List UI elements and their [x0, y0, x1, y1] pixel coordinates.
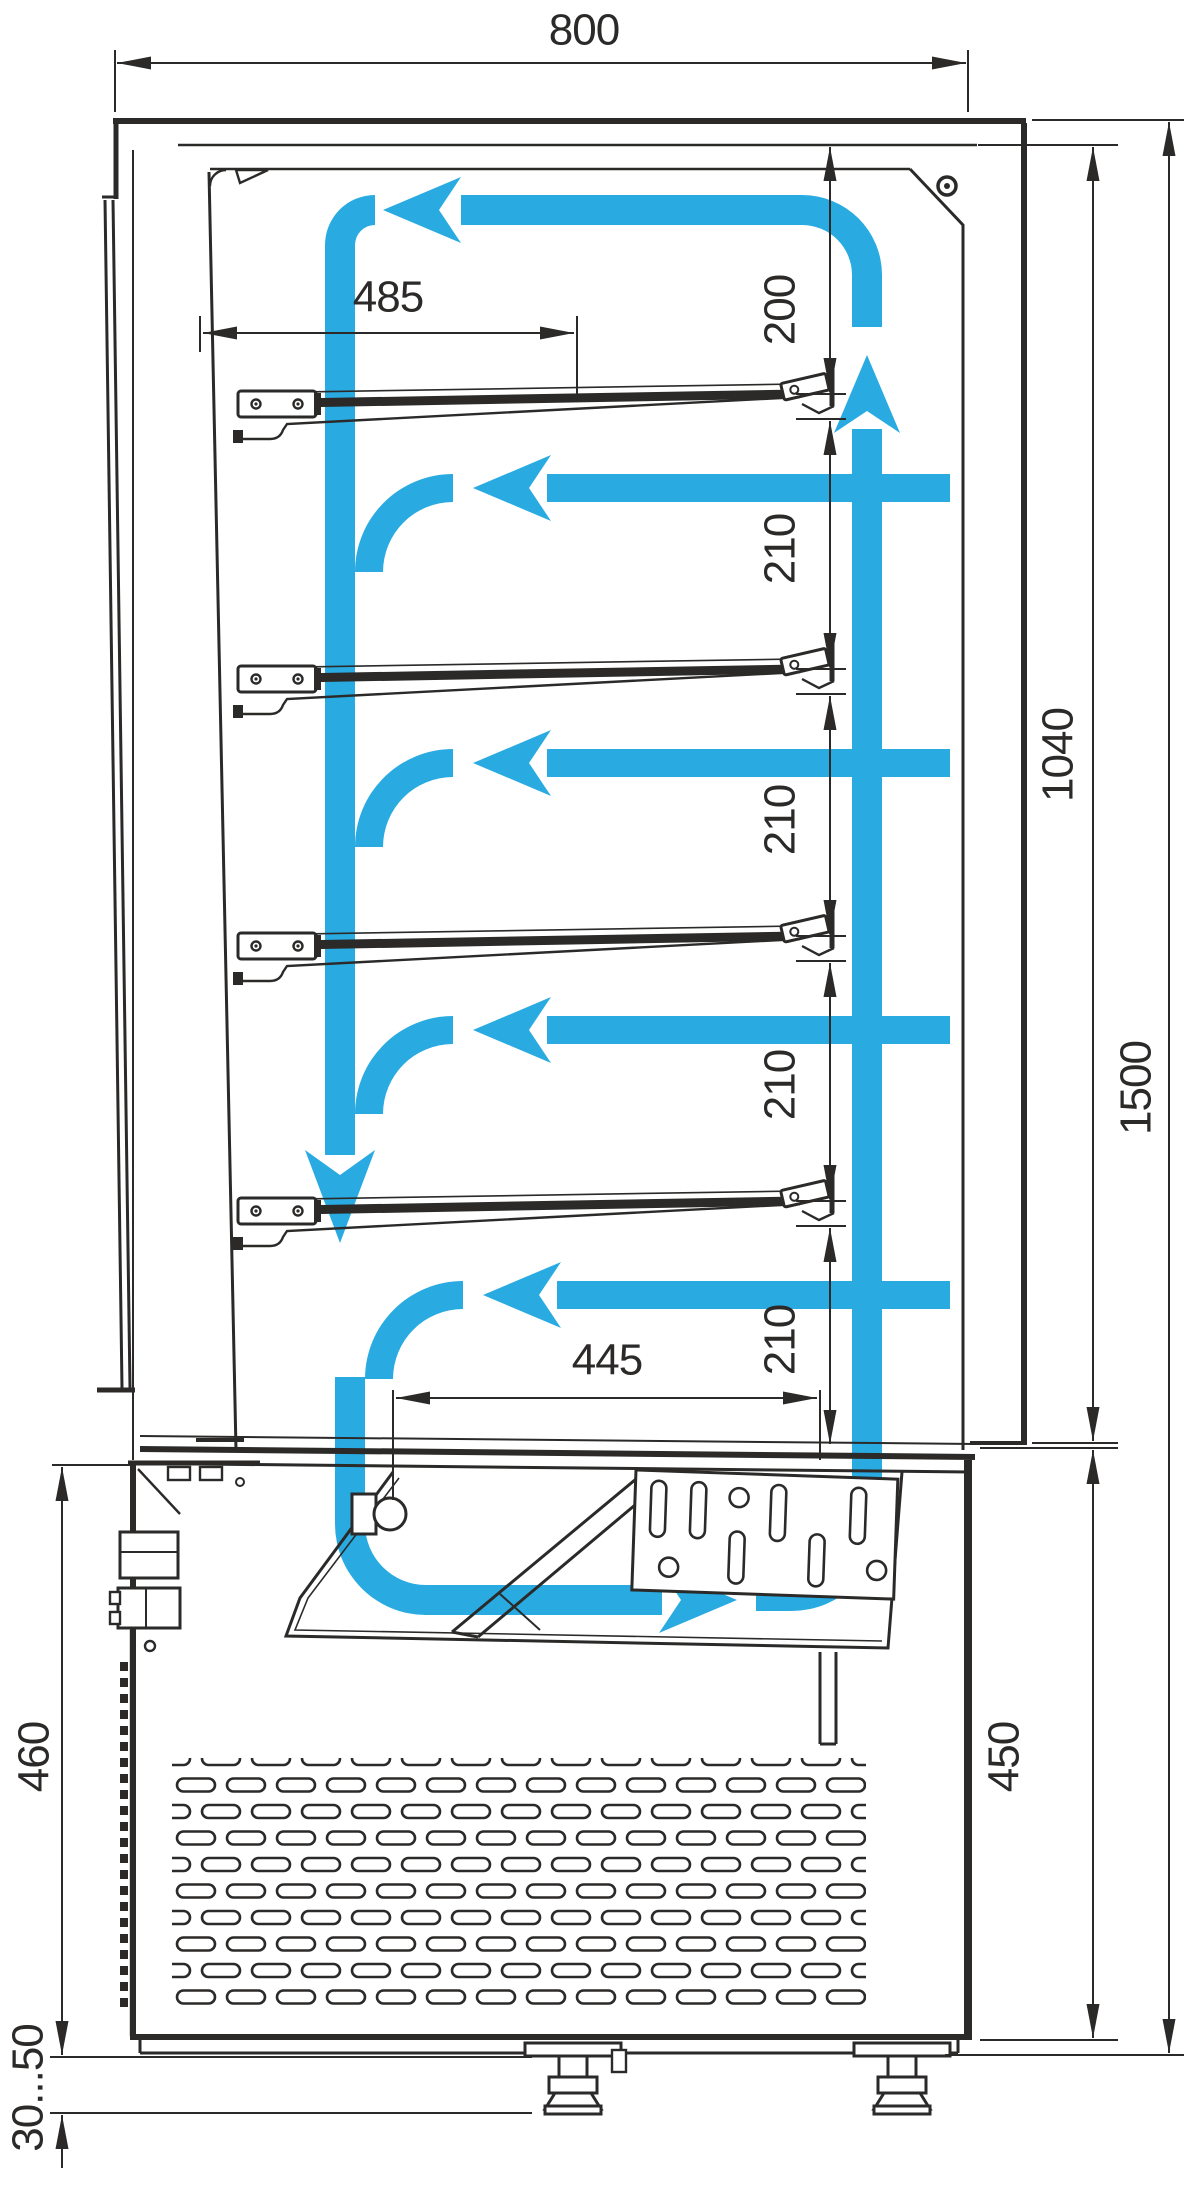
- dim-label-gap-3: 210: [756, 1050, 805, 1120]
- dim-label-overall-height: 1500: [1112, 1041, 1161, 1135]
- dim-label-well-opening: 445: [572, 1336, 642, 1385]
- back-panel: [209, 172, 236, 1450]
- drawing-sheet: 800 485 200 210 210 210 210: [0, 0, 1189, 2186]
- dim-foot-adjustment: 30...50: [4, 2024, 533, 2168]
- shelf-1-front-clamp: [781, 373, 830, 400]
- dim-label-overall-width: 800: [549, 6, 619, 55]
- airflow-left-arrow-4-icon: [483, 1262, 561, 1328]
- airflow-left-arrow-1-icon: [473, 455, 551, 521]
- dim-shelf-gaps-chain: 200 210 210 210 210: [756, 147, 847, 1444]
- dim-display-height: 1040: [978, 145, 1118, 1443]
- screw-icon: [145, 1641, 155, 1651]
- shelf-4-front-clamp: [781, 1180, 830, 1207]
- shelf-1: [233, 369, 834, 443]
- fan-mount: [352, 1494, 376, 1534]
- adjustable-foot-right: [854, 2043, 950, 2114]
- airflow-left-arrow-top-icon: [383, 177, 461, 243]
- dim-label-top-gap: 200: [756, 275, 805, 345]
- corner-arc: [210, 170, 226, 186]
- dim-overall-width: 800: [115, 6, 968, 113]
- dim-label-shelf-depth: 485: [353, 273, 423, 322]
- electrical-box: [110, 1532, 180, 1628]
- shelf-2-bracket: [238, 666, 316, 692]
- airflow-bottom-left-curl: [335, 1524, 426, 1615]
- shelf-3-bracket: [238, 933, 316, 959]
- dim-label-display-height: 1040: [1034, 708, 1083, 802]
- adjustable-foot-left: [525, 2043, 626, 2114]
- screw-center: [944, 183, 950, 189]
- airflow-riser-band: [852, 429, 882, 1520]
- dim-shelf-depth: 485: [200, 273, 577, 397]
- refrigerated-display-case-section-drawing: 800 485 200 210 210 210 210: [0, 0, 1189, 2186]
- dim-label-foot-adjustment: 30...50: [4, 2024, 53, 2152]
- airflow-left-arrow-3-icon: [473, 997, 551, 1063]
- airflow-ceiling-band: [461, 195, 763, 225]
- airflow-well-band: [424, 1585, 662, 1615]
- shelf-2: [233, 644, 834, 718]
- shelf-3-front-clamp: [781, 915, 830, 942]
- front-glass: [105, 200, 130, 1388]
- shelf-2-front-clamp: [781, 648, 830, 675]
- corner-flap: [236, 170, 268, 183]
- dim-label-base-height-front: 450: [980, 1722, 1029, 1792]
- airflow-top-left-curl: [325, 195, 375, 284]
- dim-label-gap-2: 210: [756, 785, 805, 855]
- airflow-curtain-band-upper: [325, 282, 355, 1155]
- ventilation-grille: [172, 1758, 866, 2014]
- shelf-3: [233, 911, 834, 985]
- fan-motor: [374, 1498, 406, 1530]
- perforated-tray: [632, 1470, 898, 1599]
- shelf-4-bracket: [238, 1198, 316, 1224]
- duct-inner-wall: [910, 169, 963, 1450]
- airflow-left-arrow-2-icon: [473, 730, 551, 796]
- dim-label-gap-4: 210: [756, 1305, 805, 1375]
- drain-pipe: [820, 1652, 836, 1744]
- counter-deck: [140, 1436, 975, 1472]
- dim-label-gap-1: 210: [756, 514, 805, 584]
- shelf-1-bracket: [238, 391, 316, 417]
- dim-base-height-front: 450: [980, 1448, 1119, 2040]
- dim-label-base-height-back: 460: [10, 1722, 59, 1792]
